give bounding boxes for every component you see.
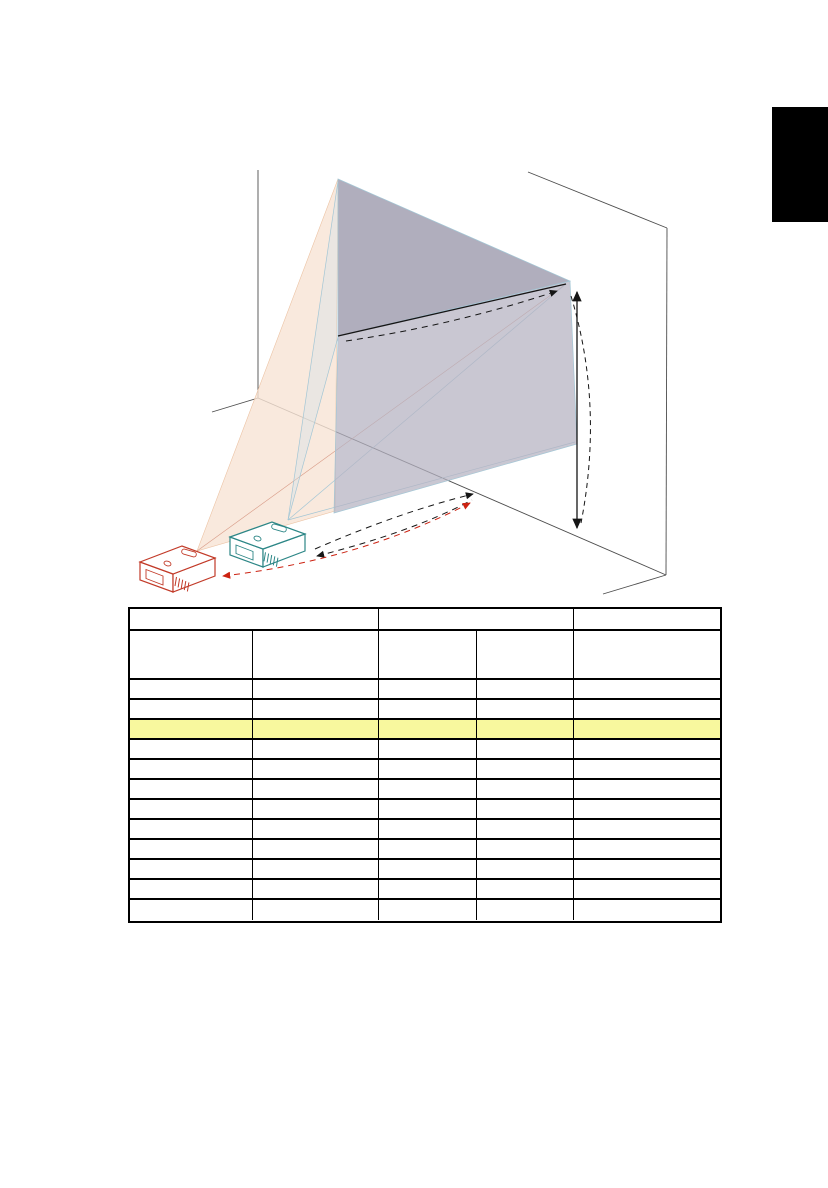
table-cell [130, 680, 253, 698]
table-cell [477, 780, 574, 798]
table-cell [574, 820, 720, 838]
table-cell [379, 880, 477, 898]
table-cell [477, 820, 574, 838]
table-header-cell [477, 631, 574, 678]
table-cell [253, 800, 379, 818]
table-cell [477, 840, 574, 858]
table-row [130, 800, 720, 820]
table-cell [477, 680, 574, 698]
table-cell [379, 720, 477, 738]
table-cell [253, 780, 379, 798]
table-cell [253, 860, 379, 878]
table-row-highlighted [130, 720, 720, 740]
table-cell [379, 760, 477, 778]
table-header-row [130, 631, 720, 680]
table-cell [253, 700, 379, 718]
projection-distance-table [128, 607, 722, 923]
table-cell [477, 880, 574, 898]
table-cell [379, 900, 477, 920]
table-cell [379, 860, 477, 878]
table-header-cell [130, 631, 253, 678]
table-row [130, 840, 720, 860]
table-cell [379, 740, 477, 758]
table-cell [574, 700, 720, 718]
table-cell [379, 700, 477, 718]
table-cell [574, 780, 720, 798]
table-row [130, 700, 720, 720]
table-cell [253, 760, 379, 778]
table-cell [130, 720, 253, 738]
table-cell [574, 860, 720, 878]
manual-page [0, 0, 828, 1188]
table-cell [379, 840, 477, 858]
table-cell [574, 740, 720, 758]
table-header-cell [130, 609, 379, 629]
table-cell [574, 680, 720, 698]
table-cell [130, 700, 253, 718]
table-cell [477, 740, 574, 758]
table-cell [574, 760, 720, 778]
table-cell [130, 760, 253, 778]
red-projector [140, 546, 215, 592]
table-cell [130, 840, 253, 858]
table-row [130, 760, 720, 780]
table-header-cell [379, 631, 477, 678]
table-cell [130, 900, 253, 920]
table-cell [477, 760, 574, 778]
table-row [130, 860, 720, 880]
table-cell [130, 860, 253, 878]
table-header-cell [379, 609, 574, 629]
table-cell [379, 800, 477, 818]
table-cell [477, 720, 574, 738]
table-cell [574, 840, 720, 858]
table-cell [379, 680, 477, 698]
projection-distance-diagram [0, 0, 828, 1188]
table-cell [477, 860, 574, 878]
table-row [130, 900, 720, 920]
table-cell [379, 820, 477, 838]
table-cell [574, 720, 720, 738]
table-cell [477, 700, 574, 718]
table-row [130, 880, 720, 900]
table-cell [253, 880, 379, 898]
table-header-cell [574, 631, 720, 678]
table-row [130, 680, 720, 700]
table-cell [574, 900, 720, 920]
table-cell [253, 900, 379, 920]
table-cell [574, 800, 720, 818]
table-cell [130, 820, 253, 838]
table-row [130, 780, 720, 800]
table-cell [130, 800, 253, 818]
table-cell [379, 780, 477, 798]
table-header-cell [253, 631, 379, 678]
table-cell [574, 880, 720, 898]
table-cell [253, 820, 379, 838]
table-cell [253, 680, 379, 698]
table-header-group-row [130, 609, 720, 631]
table-cell [130, 780, 253, 798]
table-cell [477, 900, 574, 920]
table-cell [130, 740, 253, 758]
table-row [130, 820, 720, 840]
table-cell [253, 840, 379, 858]
table-cell [130, 880, 253, 898]
table-cell [253, 720, 379, 738]
table-header-cell [574, 609, 720, 629]
table-cell [253, 740, 379, 758]
table-row [130, 740, 720, 760]
table-cell [477, 800, 574, 818]
